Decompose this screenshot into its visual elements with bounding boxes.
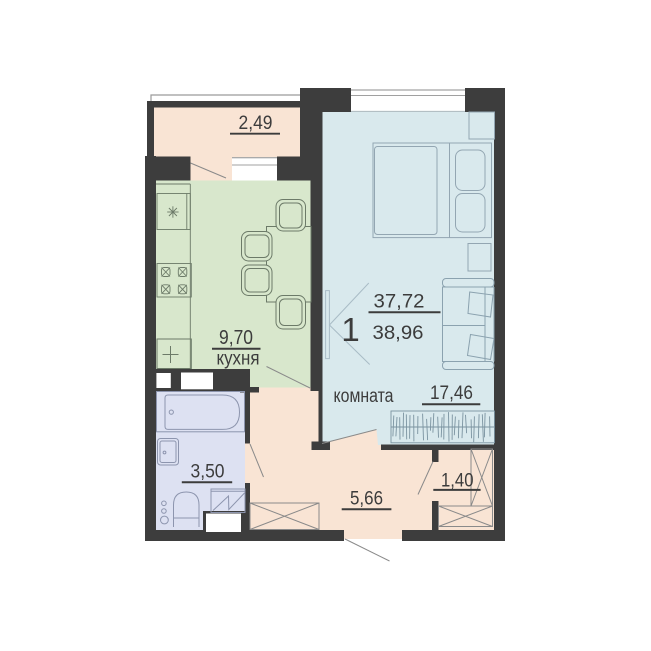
- svg-text:1,40: 1,40: [441, 470, 474, 492]
- svg-text:1: 1: [341, 311, 359, 348]
- svg-text:2,49: 2,49: [239, 113, 273, 134]
- svg-text:комната: комната: [334, 386, 394, 407]
- svg-text:5,66: 5,66: [350, 488, 383, 510]
- svg-text:17,46: 17,46: [430, 382, 473, 404]
- svg-text:37,72: 37,72: [374, 291, 425, 313]
- svg-text:кухня: кухня: [217, 348, 260, 369]
- svg-text:9,70: 9,70: [219, 327, 253, 349]
- svg-text:38,96: 38,96: [373, 322, 424, 344]
- svg-text:3,50: 3,50: [191, 462, 225, 483]
